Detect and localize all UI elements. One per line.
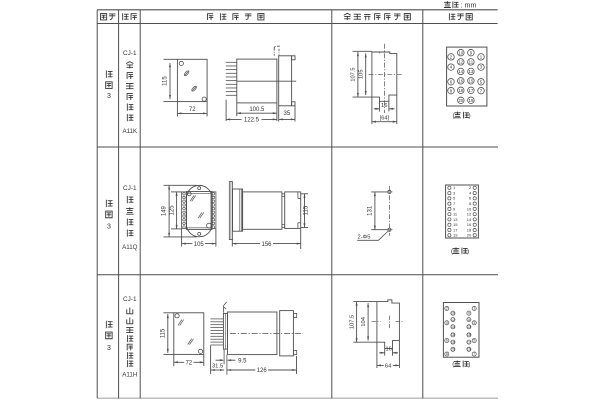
svg-text:15: 15 bbox=[469, 78, 474, 83]
svg-text:16: 16 bbox=[381, 103, 387, 109]
svg-text:12: 12 bbox=[467, 212, 472, 217]
svg-text::: : bbox=[461, 2, 463, 9]
svg-text:13: 13 bbox=[453, 217, 458, 222]
svg-text:15: 15 bbox=[467, 333, 471, 337]
svg-text:18: 18 bbox=[458, 88, 463, 93]
svg-text:5: 5 bbox=[473, 339, 475, 343]
svg-text:): ) bbox=[468, 361, 470, 368]
svg-text:7: 7 bbox=[473, 352, 475, 356]
svg-text:20: 20 bbox=[467, 233, 472, 238]
svg-text:104: 104 bbox=[361, 317, 367, 327]
svg-text:A11H: A11H bbox=[122, 372, 137, 379]
svg-text:115: 115 bbox=[304, 205, 310, 215]
svg-text:100.5: 100.5 bbox=[249, 107, 265, 113]
svg-text:31.5: 31.5 bbox=[212, 364, 223, 370]
svg-text:16: 16 bbox=[458, 78, 463, 83]
svg-text:8: 8 bbox=[446, 352, 448, 356]
svg-text:14: 14 bbox=[467, 217, 472, 222]
svg-text:[64]: [64] bbox=[380, 116, 390, 122]
svg-text:): ) bbox=[467, 248, 469, 255]
svg-text:14: 14 bbox=[458, 69, 463, 74]
svg-text:12: 12 bbox=[458, 59, 463, 64]
svg-text:4: 4 bbox=[446, 321, 448, 325]
svg-text:131: 131 bbox=[368, 205, 374, 216]
svg-text:13: 13 bbox=[467, 325, 471, 329]
svg-text:2: 2 bbox=[446, 307, 448, 311]
svg-text:72: 72 bbox=[185, 360, 192, 366]
svg-text:12: 12 bbox=[451, 318, 455, 322]
svg-text:17: 17 bbox=[469, 88, 474, 93]
svg-text:122.5: 122.5 bbox=[244, 118, 260, 124]
svg-text:16: 16 bbox=[451, 333, 455, 337]
svg-text:64: 64 bbox=[385, 363, 392, 369]
svg-text:19: 19 bbox=[453, 233, 458, 238]
svg-text:105: 105 bbox=[359, 70, 365, 80]
svg-text:13: 13 bbox=[469, 69, 474, 74]
svg-text:10: 10 bbox=[451, 311, 455, 315]
svg-text:1: 1 bbox=[473, 307, 475, 311]
svg-text:CJ-1: CJ-1 bbox=[123, 296, 137, 303]
svg-text:20: 20 bbox=[451, 348, 455, 352]
svg-text:126: 126 bbox=[257, 368, 268, 374]
svg-text:3: 3 bbox=[473, 321, 475, 325]
svg-text:105: 105 bbox=[194, 242, 205, 248]
svg-text:72: 72 bbox=[189, 107, 196, 113]
svg-text:6: 6 bbox=[446, 339, 448, 343]
svg-text:107.5: 107.5 bbox=[349, 315, 355, 329]
svg-text:156: 156 bbox=[261, 242, 272, 248]
svg-text:CJ-1: CJ-1 bbox=[123, 185, 137, 192]
svg-text:): ) bbox=[469, 112, 471, 119]
svg-text:16: 16 bbox=[467, 222, 472, 227]
svg-text:mm: mm bbox=[465, 2, 477, 9]
svg-text:18: 18 bbox=[467, 227, 472, 232]
svg-text:3: 3 bbox=[107, 93, 111, 100]
svg-text:19: 19 bbox=[467, 348, 471, 352]
svg-text:A11Q: A11Q bbox=[122, 244, 138, 251]
svg-text:19: 19 bbox=[469, 98, 474, 103]
svg-text:35: 35 bbox=[284, 111, 291, 117]
svg-text:2-Φ5: 2-Φ5 bbox=[357, 235, 370, 241]
svg-text:17: 17 bbox=[467, 340, 471, 344]
svg-text:14: 14 bbox=[451, 325, 455, 329]
svg-text:15: 15 bbox=[453, 222, 458, 227]
svg-text:11: 11 bbox=[467, 318, 471, 322]
svg-text:10: 10 bbox=[467, 206, 472, 211]
svg-text:18: 18 bbox=[451, 340, 455, 344]
svg-text:17: 17 bbox=[453, 227, 458, 232]
svg-text:16: 16 bbox=[385, 346, 391, 352]
svg-text:10: 10 bbox=[458, 50, 463, 55]
svg-text:149: 149 bbox=[162, 205, 168, 216]
svg-text:A11K: A11K bbox=[122, 128, 138, 135]
svg-text:20: 20 bbox=[458, 98, 463, 103]
svg-text:115: 115 bbox=[163, 76, 169, 86]
svg-text:9: 9 bbox=[468, 311, 470, 315]
svg-text:115: 115 bbox=[161, 328, 167, 338]
svg-text:3: 3 bbox=[107, 345, 111, 352]
svg-text:9.5: 9.5 bbox=[238, 358, 247, 364]
svg-text:11: 11 bbox=[469, 59, 474, 64]
svg-text:107.5: 107.5 bbox=[351, 67, 357, 81]
svg-text:CJ-1: CJ-1 bbox=[123, 50, 137, 57]
svg-text:125: 125 bbox=[169, 205, 175, 216]
svg-text:3: 3 bbox=[107, 224, 111, 231]
